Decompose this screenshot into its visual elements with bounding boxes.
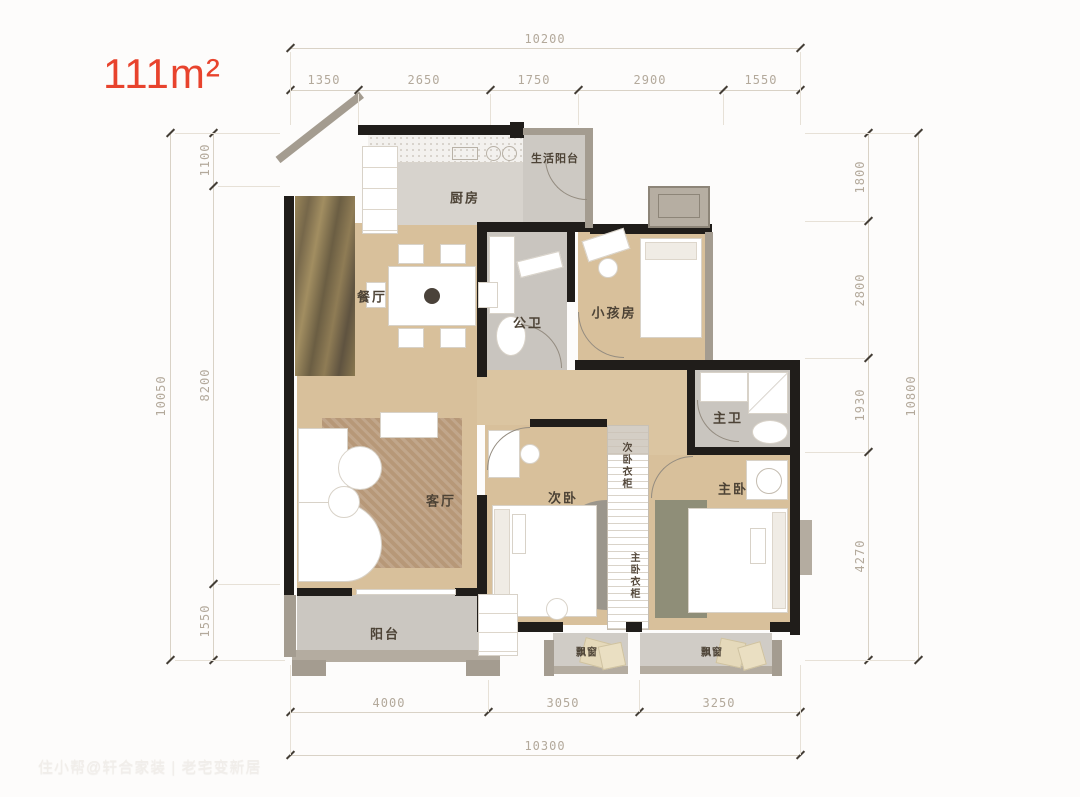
floorplan-canvas: 111m² <box>0 0 1080 797</box>
dim-top-seg-0: 1350 <box>308 73 341 87</box>
dining-chair-1 <box>398 244 424 264</box>
ext-line <box>805 452 865 453</box>
ext-line <box>639 680 640 712</box>
wall-right-master <box>790 455 800 635</box>
room-label-master-bedroom: 主卧 <box>718 479 748 498</box>
ext-line <box>805 221 865 222</box>
bath2-toilet <box>752 420 788 444</box>
living-console <box>380 412 438 438</box>
room-label-dining: 餐厅 <box>357 287 387 306</box>
bath2-shower <box>748 372 788 414</box>
window-master-right <box>800 520 812 575</box>
wall-top-kitchen <box>358 125 518 135</box>
dim-top-total: 10200 <box>524 32 565 46</box>
ext-line <box>800 665 801 755</box>
dim-right-seg-1: 2800 <box>853 274 867 307</box>
dining-chair-2 <box>440 244 466 264</box>
ext-line <box>290 665 291 755</box>
ext-line <box>488 680 489 712</box>
dim-bottom-seg-0: 4000 <box>373 696 406 710</box>
dim-top-total-line <box>290 48 800 49</box>
dim-left-seg-1: 8200 <box>198 369 212 402</box>
dim-top-seg-3: 2900 <box>634 73 667 87</box>
window-service-balcony <box>523 128 585 135</box>
ext-line <box>290 52 291 125</box>
dining-chair-3 <box>398 328 424 348</box>
wall-bottom-right <box>770 622 800 632</box>
kids-chair <box>598 258 618 278</box>
dim-right-total-line <box>918 133 919 660</box>
watermark: 住小帮@轩合家装 | 老宅变新居 <box>38 756 261 777</box>
laundry-column <box>478 594 518 656</box>
tick <box>914 655 923 664</box>
nightstand-plant-icon <box>756 468 782 494</box>
dim-right-seg-0: 1800 <box>853 161 867 194</box>
room-label-kids-room: 小孩房 <box>591 303 636 322</box>
bay1-post <box>544 640 554 676</box>
ext-line <box>218 186 280 187</box>
wall-bay-pillar <box>626 622 642 632</box>
dim-bottom-seg-1: 3050 <box>547 696 580 710</box>
dim-right-total: 10800 <box>904 375 918 416</box>
balcony-slider-door <box>356 589 456 595</box>
wall-bath2-bottom <box>687 447 790 455</box>
kids-pillow <box>645 242 697 260</box>
dining-chair-4 <box>440 328 466 348</box>
dim-left-seg-2: 1550 <box>198 605 212 638</box>
dining-centerpiece-icon <box>424 288 440 304</box>
coffee-table-small <box>328 486 360 518</box>
room-label-second-wardrobe: 次卧衣柜 <box>618 442 633 490</box>
dim-top-seg-2: 1750 <box>518 73 551 87</box>
wall-kids-right <box>705 232 713 360</box>
dim-right-seg-2: 1930 <box>853 389 867 422</box>
wall-corner-block <box>510 122 524 138</box>
wall-balcony-left <box>297 588 352 596</box>
ext-line <box>723 94 724 125</box>
wall-bath2-left <box>687 360 695 455</box>
dim-right-seg-3: 4270 <box>853 540 867 573</box>
room-label-second-bedroom: 次卧 <box>548 488 578 507</box>
tick <box>166 655 175 664</box>
ext-line <box>175 133 280 134</box>
balcony-post-right <box>466 660 500 676</box>
ext-line <box>358 94 359 125</box>
ext-line <box>490 94 491 125</box>
bed2-pillow <box>512 514 526 554</box>
room-label-master-bath: 主卫 <box>713 408 743 427</box>
coffee-table-large <box>338 446 382 490</box>
room-label-balcony: 阳台 <box>370 624 400 643</box>
sink-bowl-1-icon <box>486 146 501 161</box>
room-label-public-bath: 公卫 <box>513 313 543 332</box>
balcony-basin <box>546 598 568 620</box>
kitchen-cabinet <box>362 146 398 234</box>
ext-line <box>175 660 285 661</box>
ext-line <box>800 52 801 125</box>
room-label-master-wardrobe: 主卧衣柜 <box>626 552 641 600</box>
dining-chair-6 <box>478 282 498 308</box>
room-label-bay-window-1: 飘窗 <box>576 644 598 659</box>
dim-top-seg-4: 1550 <box>745 73 778 87</box>
room-label-living: 客厅 <box>426 491 456 510</box>
ac-platform-inner <box>658 194 700 218</box>
marble-feature-wall <box>295 196 355 376</box>
dim-top-seg-1: 2650 <box>408 73 441 87</box>
room-label-service-balcony: 生活阳台 <box>531 150 579 166</box>
dim-bottom-total-line <box>290 755 800 756</box>
ext-line <box>218 584 280 585</box>
bath2-sink <box>700 372 748 402</box>
stove-icon <box>452 147 478 160</box>
balcony-post-left <box>292 660 326 676</box>
dim-bottom-seg-line <box>290 712 800 713</box>
wall-bath1-kids-divider <box>567 232 575 302</box>
room-label-bay-window-2: 飘窗 <box>701 644 723 659</box>
balcony-side-left <box>284 595 296 657</box>
wall-left-outer <box>284 196 294 595</box>
dim-bottom-total: 10300 <box>524 739 565 753</box>
wall-bath1-top <box>477 222 590 232</box>
bay1-pillow-2 <box>598 642 626 670</box>
master-headboard <box>772 512 786 609</box>
wall-right-upper <box>790 360 800 455</box>
room-label-kitchen: 厨房 <box>450 188 480 207</box>
dim-left-seg-0: 1100 <box>198 144 212 177</box>
dim-left-total-line <box>170 133 171 660</box>
wall-bed2-top <box>530 419 607 427</box>
ext-line <box>805 133 915 134</box>
ext-line <box>805 358 865 359</box>
dim-bottom-seg-2: 3250 <box>703 696 736 710</box>
master-pillow <box>750 528 766 564</box>
ext-line <box>578 94 579 125</box>
area-label: 111m² <box>103 50 221 98</box>
sink-bowl-2-icon <box>502 146 517 161</box>
ext-line <box>805 660 915 661</box>
wall-diagonal <box>276 92 364 164</box>
floor-hallway <box>477 370 649 425</box>
dim-left-total: 10050 <box>154 375 168 416</box>
dim-right-seg-line <box>868 133 869 660</box>
bay2-post <box>772 640 782 676</box>
